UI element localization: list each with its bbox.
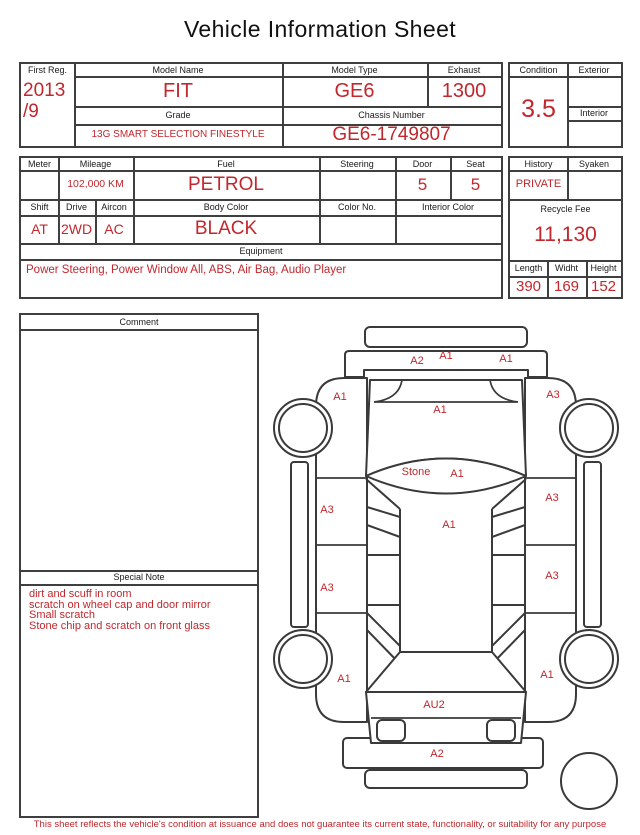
right-mirror bbox=[492, 507, 525, 537]
top-info-table: First Reg. 2013 /9 Model Name FIT Model … bbox=[19, 62, 503, 148]
rear-left-wheel bbox=[274, 630, 332, 688]
equipment-value: Power Steering, Power Window All, ABS, A… bbox=[26, 263, 496, 277]
height-value: 152 bbox=[586, 276, 621, 298]
history-value: PRIVATE bbox=[510, 170, 567, 199]
damage-code-label: A3 bbox=[545, 570, 558, 582]
drive-value: 2WD bbox=[58, 215, 95, 243]
fuel-value: PETROL bbox=[133, 170, 319, 199]
car-damage-diagram: A2A1A1A1A3A1StoneA1A3A3A1A3A3A1A1AU2A2 bbox=[270, 310, 640, 810]
rear-window bbox=[366, 652, 526, 692]
model-name-value: FIT bbox=[74, 76, 282, 106]
left-sill bbox=[291, 462, 308, 627]
left-door-window bbox=[367, 555, 400, 605]
grade-label: Grade bbox=[74, 106, 282, 124]
left-tail-light bbox=[377, 720, 405, 741]
exterior-label: Exterior bbox=[567, 64, 621, 76]
shift-label: Shift bbox=[21, 199, 58, 215]
history-box: History Syaken PRIVATE Recycle Fee 11,13… bbox=[508, 156, 623, 299]
condition-score: 3.5 bbox=[510, 76, 567, 142]
damage-code-label: A2 bbox=[430, 748, 443, 760]
damage-code-label: A1 bbox=[450, 468, 463, 480]
meter-label: Meter bbox=[21, 158, 58, 170]
rear-bottom-strip bbox=[365, 770, 527, 788]
rear-right-wheel bbox=[560, 630, 618, 688]
damage-code-label: A1 bbox=[337, 673, 350, 685]
right-door-window bbox=[492, 555, 525, 605]
steering-label: Steering bbox=[319, 158, 395, 170]
body-color-value: BLACK bbox=[133, 215, 319, 243]
page-title: Vehicle Information Sheet bbox=[0, 16, 640, 43]
damage-code-label: A3 bbox=[545, 492, 558, 504]
drive-label: Drive bbox=[58, 199, 95, 215]
chassis-number-label: Chassis Number bbox=[282, 106, 501, 124]
model-name-label: Model Name bbox=[74, 64, 282, 76]
first-reg-label: First Reg. bbox=[21, 64, 74, 76]
door-label: Door bbox=[395, 158, 450, 170]
history-label: History bbox=[510, 158, 567, 170]
note-line: dirt and scuff in room bbox=[29, 589, 255, 600]
grid-line bbox=[21, 259, 501, 261]
front-right-wheel bbox=[560, 399, 618, 457]
model-type-label: Model Type bbox=[282, 64, 427, 76]
door-value: 5 bbox=[395, 170, 450, 199]
left-mirror bbox=[367, 507, 400, 537]
width-value: 169 bbox=[547, 276, 586, 298]
special-note-lines: dirt and scuff in roomscratch on wheel c… bbox=[29, 589, 255, 631]
damage-code-label: A1 bbox=[333, 391, 346, 403]
recycle-fee-value: 11,130 bbox=[510, 216, 621, 254]
aircon-label: Aircon bbox=[95, 199, 133, 215]
damage-code-label: A2 bbox=[410, 355, 423, 367]
mileage-label: Mileage bbox=[58, 158, 133, 170]
damage-code-label: AU2 bbox=[423, 699, 444, 711]
comment-box: Comment Special Note dirt and scuff in r… bbox=[19, 313, 259, 818]
grid-line bbox=[21, 584, 257, 586]
spare-wheel bbox=[561, 753, 617, 809]
vehicle-information-sheet: Vehicle Information Sheet First Reg. 201… bbox=[0, 0, 640, 835]
condition-box: Condition 3.5 Exterior Interior bbox=[508, 62, 623, 148]
first-reg-month: /9 bbox=[23, 101, 76, 122]
damage-code-label: A3 bbox=[320, 504, 333, 516]
damage-code-label: A1 bbox=[433, 404, 446, 416]
seat-label: Seat bbox=[450, 158, 501, 170]
front-left-wheel bbox=[274, 399, 332, 457]
first-reg-year: 2013 bbox=[23, 80, 76, 101]
first-reg-value: 2013 /9 bbox=[23, 80, 76, 122]
chassis-number-value: GE6-1749807 bbox=[282, 124, 501, 146]
disclaimer-text: This sheet reflects the vehicle's condit… bbox=[0, 819, 640, 830]
width-label: Widht bbox=[547, 260, 586, 276]
right-tail-light bbox=[487, 720, 515, 741]
interior-color-label: Interior Color bbox=[395, 199, 501, 215]
interior-label: Interior bbox=[567, 106, 621, 120]
seat-value: 5 bbox=[450, 170, 501, 199]
grade-value: 13G SMART SELECTION FINESTYLE bbox=[74, 124, 282, 146]
grid-line bbox=[21, 329, 257, 331]
note-line: Small scratch bbox=[29, 610, 255, 621]
model-type-value: GE6 bbox=[282, 76, 427, 106]
length-label: Length bbox=[510, 260, 547, 276]
comment-label: Comment bbox=[21, 315, 257, 329]
right-sill bbox=[584, 462, 601, 627]
grid-line bbox=[567, 120, 621, 122]
fuel-label: Fuel bbox=[133, 158, 319, 170]
shift-value: AT bbox=[21, 215, 58, 243]
color-no-label: Color No. bbox=[319, 199, 395, 215]
special-note-label: Special Note bbox=[21, 570, 257, 584]
exhaust-value: 1300 bbox=[427, 76, 501, 106]
aircon-value: AC bbox=[95, 215, 133, 243]
damage-code-label: Stone bbox=[402, 466, 431, 478]
damage-code-label: A1 bbox=[439, 350, 452, 362]
condition-label: Condition bbox=[510, 64, 567, 76]
damage-code-label: A1 bbox=[540, 669, 553, 681]
damage-code-label: A1 bbox=[442, 519, 455, 531]
spec-table: Meter Mileage Fuel Steering Door Seat 10… bbox=[19, 156, 503, 299]
note-line: Stone chip and scratch on front glass bbox=[29, 621, 255, 632]
damage-code-label: A3 bbox=[546, 389, 559, 401]
exhaust-label: Exhaust bbox=[427, 64, 501, 76]
syaken-label: Syaken bbox=[567, 158, 621, 170]
equipment-label: Equipment bbox=[21, 243, 501, 259]
recycle-fee-label: Recycle Fee bbox=[510, 202, 621, 216]
body-color-label: Body Color bbox=[133, 199, 319, 215]
mileage-value: 102,000 KM bbox=[58, 170, 133, 199]
damage-code-label: A3 bbox=[320, 582, 333, 594]
front-top-strip bbox=[365, 327, 527, 347]
height-label: Height bbox=[586, 260, 621, 276]
damage-code-label: A1 bbox=[499, 353, 512, 365]
length-value: 390 bbox=[510, 276, 547, 298]
grid-line bbox=[510, 199, 621, 201]
